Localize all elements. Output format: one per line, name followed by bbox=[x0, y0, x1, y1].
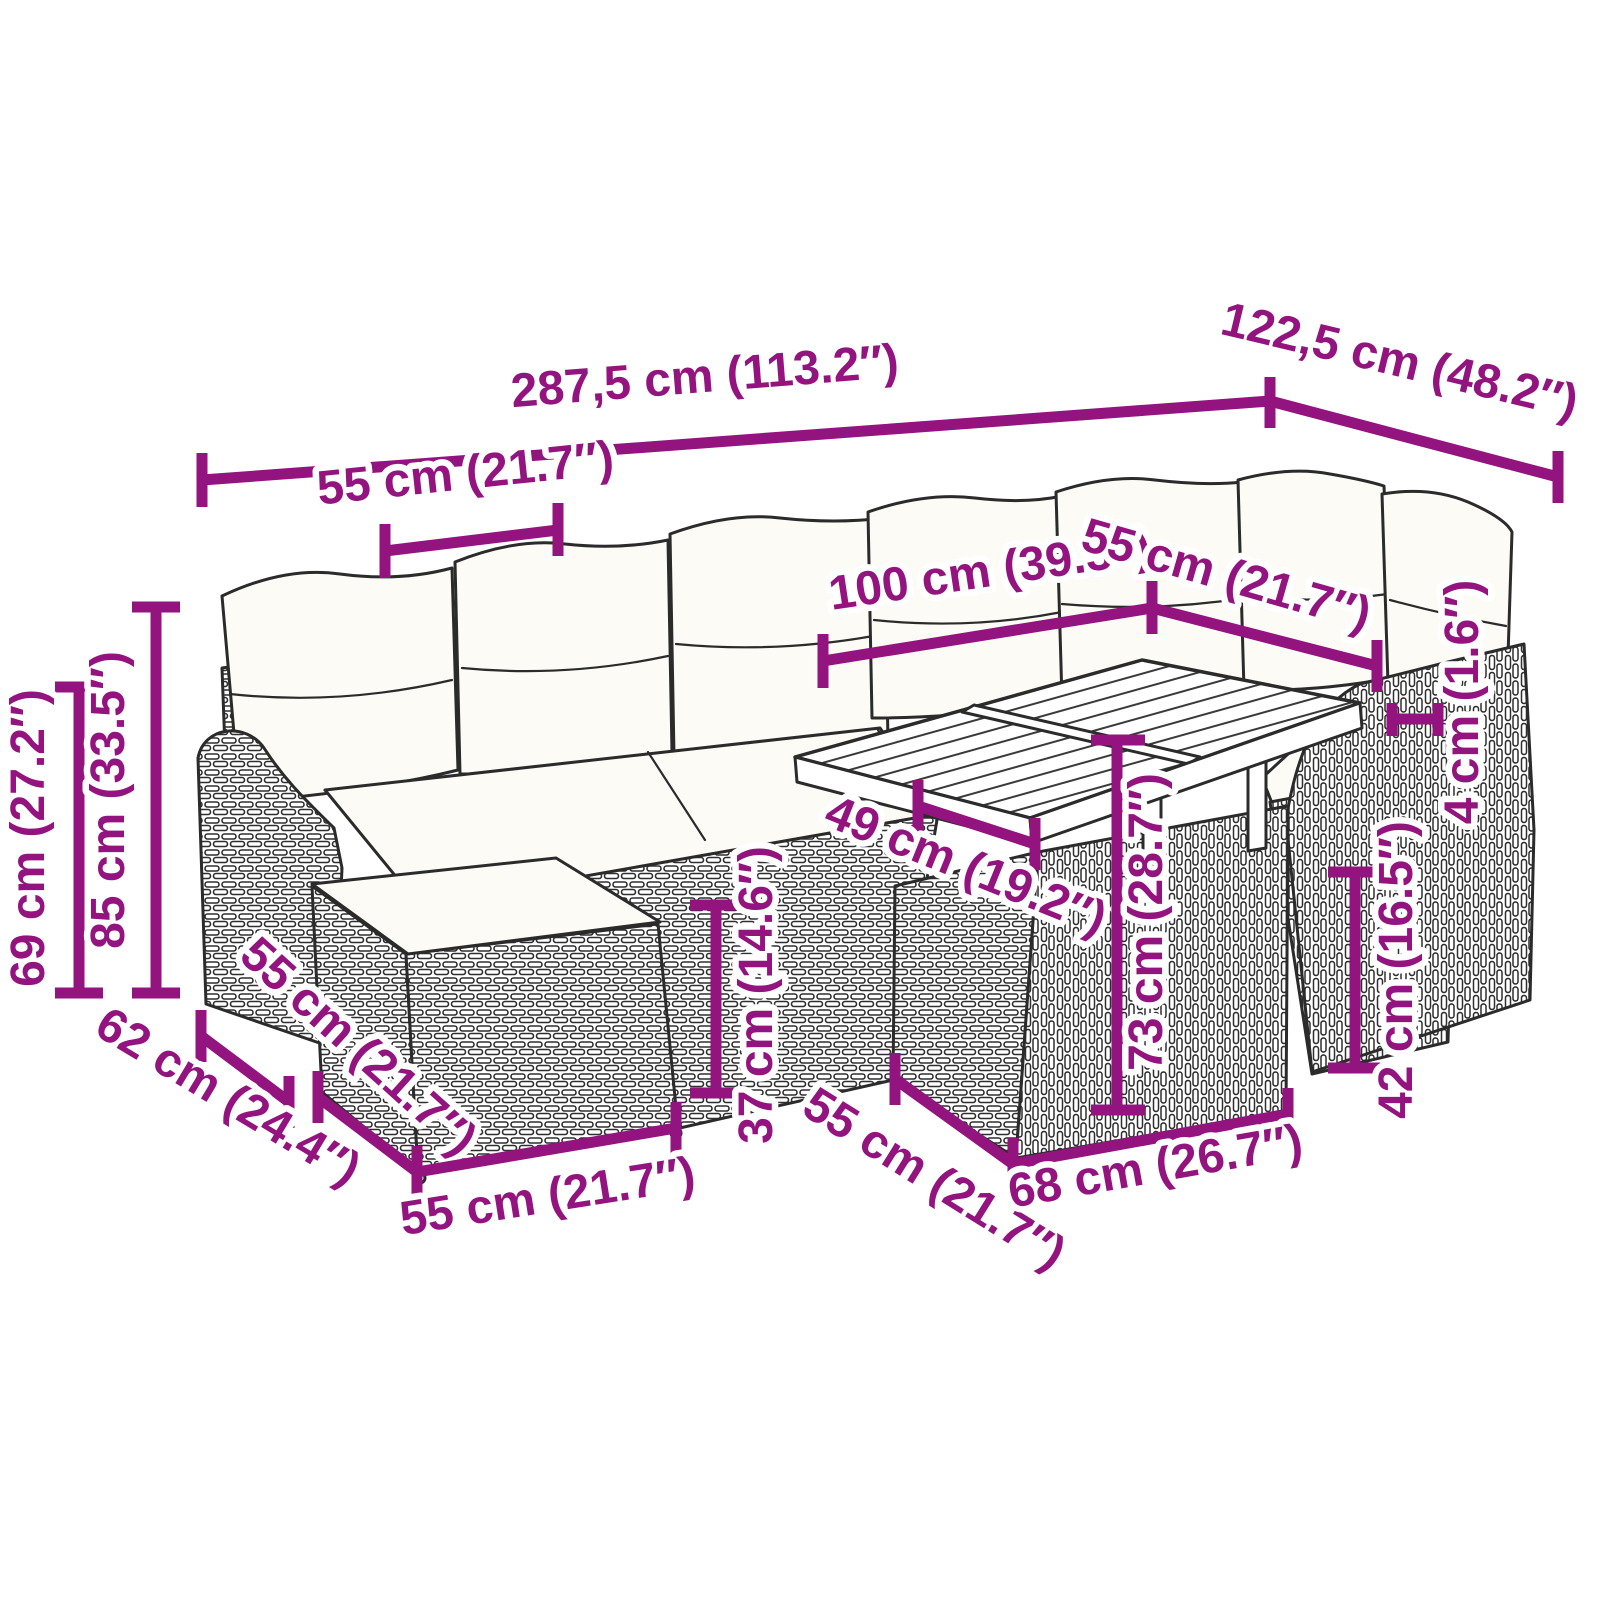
dimension-diagram: 287,5 cm (113.2″) 122,5 cm (48.2″) 55 cm… bbox=[0, 0, 1600, 1600]
armrest-height-label: 69 cm (27.2″) bbox=[2, 689, 55, 987]
pillow bbox=[670, 517, 888, 758]
seat-height-label: 37 cm (14.6″) bbox=[730, 846, 783, 1144]
tabletop-thickness-label: 4 cm (1.6″) bbox=[1436, 580, 1489, 824]
pillow bbox=[455, 540, 672, 774]
total-height-label: 85 cm (33.5″) bbox=[82, 651, 135, 949]
overall-width-label: 287,5 cm (113.2″) bbox=[509, 335, 901, 418]
furniture-dimension-drawing: 287,5 cm (113.2″) 122,5 cm (48.2″) 55 cm… bbox=[0, 0, 1600, 1600]
dimension-overall-depth: 122,5 cm (48.2″) bbox=[1216, 293, 1583, 503]
table-height-label: 73 cm (28.7″) bbox=[1120, 773, 1173, 1071]
dimension-total-height: 85 cm (33.5″) bbox=[82, 607, 180, 993]
seat-module-width-top-label: 55 cm (21.7″) bbox=[315, 432, 617, 516]
table-base-height-label: 42 cm (16.5″) bbox=[1370, 821, 1423, 1119]
